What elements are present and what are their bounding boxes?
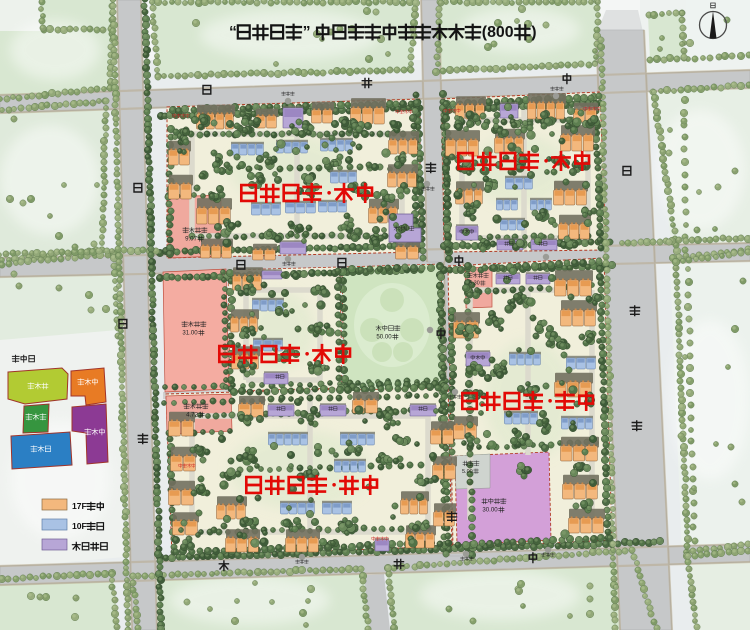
svg-text:10F: 10F xyxy=(72,521,87,531)
svg-text:(800: (800 xyxy=(482,24,514,41)
svg-text:“: “ xyxy=(229,24,237,41)
svg-text:): ) xyxy=(531,24,536,41)
svg-text:4.72: 4.72 xyxy=(186,411,198,418)
svg-text:5.30: 5.30 xyxy=(469,281,479,287)
svg-text:5.00: 5.00 xyxy=(462,469,473,475)
svg-text:30.00: 30.00 xyxy=(482,506,498,513)
svg-text:50.00: 50.00 xyxy=(376,333,392,340)
svg-text:17F: 17F xyxy=(72,501,87,511)
svg-text:”: ” xyxy=(303,24,311,41)
svg-text:9.07: 9.07 xyxy=(185,235,197,242)
svg-text:31.00: 31.00 xyxy=(182,329,198,336)
